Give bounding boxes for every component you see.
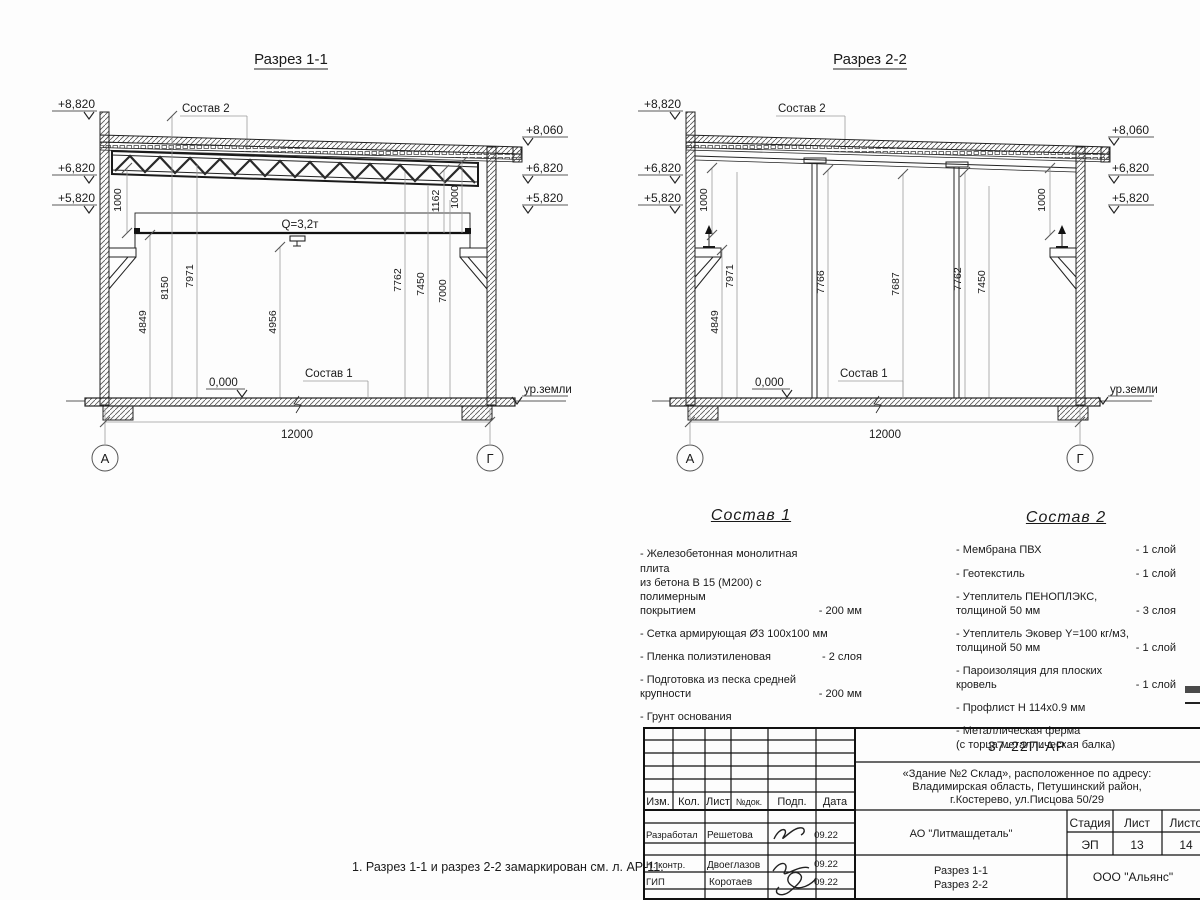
role-ncontrol: Н. контр. [646,860,685,871]
svg-text:+5,820: +5,820 [644,191,681,205]
sections-drawing: Разрез 1-1 Состав 2 [0,0,1200,500]
sheets-label: Листов [1170,816,1200,830]
axis-bubble-a: А [686,451,695,466]
sheet-value: 13 [1130,838,1144,852]
sostav1-callout: Состав 1 [838,368,903,398]
svg-text:0,000: 0,000 [209,377,238,389]
col-date: Дата [823,796,848,808]
signature-rows: Разработал Решетова 09.22 Н. контр. Двое… [646,828,838,895]
svg-text:8150: 8150 [159,276,171,300]
svg-text:7762: 7762 [952,267,964,291]
sostav1-callout: Состав 1 [303,368,368,398]
col-kol: Кол. [678,796,700,808]
elevation-marks-right: +8,060 +6,820 +5,820 [1108,123,1154,213]
scan-artifact-line [1185,702,1200,704]
svg-text:+5,820: +5,820 [1112,191,1149,205]
sostav-2-title: Состав 2 [956,508,1176,528]
date-ncontrol: 09.22 [814,859,838,870]
svg-text:1000: 1000 [698,188,710,212]
col-izm: Изм. [646,796,670,808]
crane-beam: Q=3,2т [134,213,471,248]
svg-text:12000: 12000 [281,429,313,441]
elevation-marks-left: +8,820 +6,820 +5,820 [52,97,97,213]
list-item: - Мембрана ПВХ - 1 слой [956,543,1176,557]
list-item: - Сетка армирующая Ø3 100х100 мм [640,627,862,641]
drawing-sheet: Разрез 1-1 Состав 2 [0,0,1200,900]
svg-text:1000: 1000 [112,188,124,212]
span-dim: 12000 А Г [92,408,503,471]
drawing-title-2: Разрез 2-2 [934,879,988,891]
object-line-2: Владимирская область, Петушинский район, [912,781,1141,793]
zero-level-mark: 0,000 [752,377,792,397]
axis-bubble-g: Г [486,451,493,466]
section-2-2: Разрез 2-2 Состав 2 [638,51,1158,471]
stage-label: Стадия [1070,816,1111,830]
svg-text:0,000: 0,000 [755,377,784,389]
svg-text:Состав 2: Состав 2 [778,103,826,115]
floor-slab [652,396,1152,420]
svg-text:7000: 7000 [437,279,449,303]
roof-slab [686,135,1110,172]
axis-bubble-a: А [101,451,110,466]
col-doc: №док. [736,797,762,807]
signature [774,828,804,839]
small-dims: 1000 1000 [698,163,1055,240]
svg-text:+6,820: +6,820 [1112,161,1149,175]
svg-text:12000: 12000 [869,429,901,441]
section-1-1-title: Разрез 1-1 [254,51,328,68]
role-gip: ГИП [646,877,665,888]
list-item: - Геотекстиль - 1 слой [956,567,1176,581]
name-developed: Решетова [707,830,753,841]
svg-text:Состав 2: Состав 2 [182,103,230,115]
company: АО "Литмашдеталь" [910,828,1013,840]
svg-text:7450: 7450 [976,270,988,294]
svg-text:+5,820: +5,820 [58,191,95,205]
svg-text:1000: 1000 [449,185,461,209]
sheets-value: 14 [1179,838,1193,852]
svg-text:7971: 7971 [184,264,196,288]
col-list: Лист [706,796,730,808]
list-item: - Утеплитель Эковер Y=100 кг/м3, толщино… [956,627,1176,655]
title-block-main: 37-22П-АР «Здание №2 Склад», расположенн… [903,738,1200,891]
svg-text:7766: 7766 [815,270,827,294]
svg-text:ур.земли: ур.земли [524,384,572,396]
scan-artifact [1185,686,1200,693]
role-developed: Разработал [646,830,698,841]
floor-slab [66,396,566,420]
svg-text:1000: 1000 [1036,188,1048,212]
svg-text:1162: 1162 [430,190,442,213]
doc-code: 37-22П-АР [988,738,1066,754]
organization: ООО "Альянс" [1093,870,1173,884]
svg-text:+6,820: +6,820 [644,161,681,175]
list-item: - Подготовка из песка средней крупности … [640,673,862,701]
sostav-1-list: Состав 1 - Железобетонная монолитная пли… [640,506,862,733]
footnote: 1. Разрез 1-1 и разрез 2-2 замаркирован … [352,860,664,874]
svg-text:+5,820: +5,820 [526,191,563,205]
svg-text:Состав 1: Состав 1 [840,368,888,380]
name-ncontrol: Двоеглазов [707,860,760,871]
axis-bubble-g: Г [1076,451,1083,466]
title-block: Изм. Кол. Лист №док. Подп. Дата Разработ… [643,727,1200,900]
svg-text:4956: 4956 [267,310,279,334]
object-line-3: г.Костерево, ул.Писцова 50/29 [950,794,1104,806]
svg-text:+8,820: +8,820 [644,97,681,111]
span-dim: 12000 А Г [677,408,1093,471]
section-1-1: Разрез 1-1 Состав 2 [52,51,572,471]
svg-text:+8,060: +8,060 [1112,123,1149,137]
sostav-1-title: Состав 1 [640,506,862,526]
title-block-header-row: Изм. Кол. Лист №док. Подп. Дата [646,796,848,808]
list-item: - Утеплитель ПЕНОПЛЭКС, толщиной 50 мм -… [956,590,1176,618]
svg-text:Состав 1: Состав 1 [305,368,353,380]
wall-left [686,112,695,405]
svg-text:7450: 7450 [415,272,427,296]
zero-level-mark: 0,000 [206,377,247,397]
crane-capacity-label: Q=3,2т [282,219,320,231]
date-developed: 09.22 [814,830,838,841]
svg-text:7971: 7971 [724,264,736,288]
list-item: - Железобетонная монолитная плита из бет… [640,547,862,617]
elevation-marks-left: +8,820 +6,820 +5,820 [638,97,683,213]
elevation-marks-right: +8,060 +6,820 +5,820 [522,123,568,213]
wall-right [487,147,496,405]
svg-text:+8,060: +8,060 [526,123,563,137]
svg-text:7762: 7762 [392,268,404,292]
wall-left [100,112,109,405]
interior-columns [804,158,968,398]
date-gip: 09.22 [814,877,838,888]
col-sign: Подп. [777,796,806,808]
object-line-1: «Здание №2 Склад», расположенное по адре… [903,768,1152,780]
name-gip: Коротаев [709,877,752,888]
svg-text:+8,820: +8,820 [58,97,95,111]
height-dims: 4849 7971 7766 7687 7762 7450 [709,165,989,398]
list-item: - Пленка полиэтиленовая - 2 слоя [640,650,862,664]
svg-text:4849: 4849 [709,310,721,334]
svg-text:+6,820: +6,820 [526,161,563,175]
list-item: - Грунт основания [640,710,862,724]
svg-text:+6,820: +6,820 [58,161,95,175]
signature [773,863,816,894]
list-item: - Пароизоляция для плоских кровель - 1 с… [956,664,1176,692]
crane-brackets [695,225,1076,289]
wall-right [1076,147,1085,405]
sheet-label: Лист [1124,816,1151,830]
list-item: - Профлист Н 114х0.9 мм [956,701,1176,715]
svg-text:4849: 4849 [137,310,149,334]
sostav-2-list: Состав 2 - Мембрана ПВХ - 1 слой - Геоте… [956,508,1176,761]
svg-text:ур.земли: ур.земли [1110,384,1158,396]
stage-value: ЭП [1081,838,1098,852]
section-2-2-title: Разрез 2-2 [833,51,907,68]
drawing-title-1: Разрез 1-1 [934,865,988,877]
svg-text:7687: 7687 [890,272,902,296]
